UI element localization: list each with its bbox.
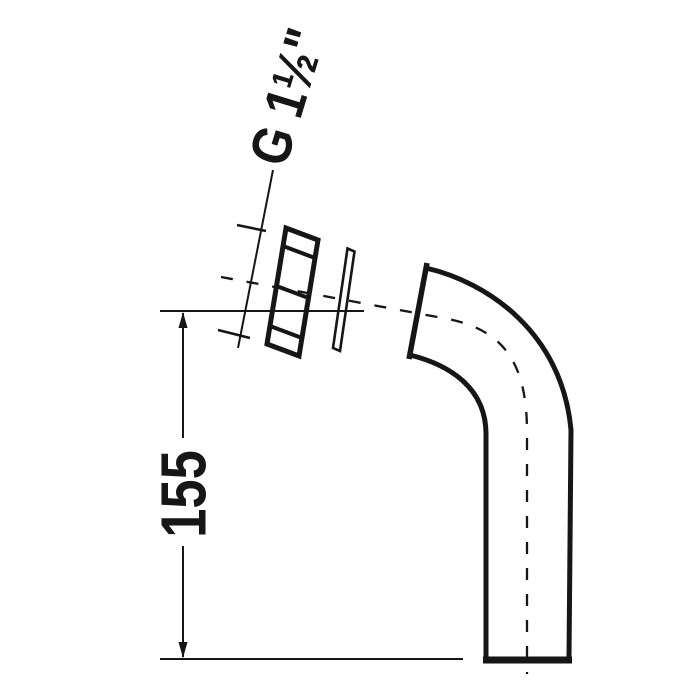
height-dimension-arrow-bottom (179, 642, 188, 658)
thread-dimension: G 1½" (218, 21, 338, 348)
washer-outline (333, 249, 355, 352)
pipe-elbow-outer-wall (426, 268, 571, 658)
pipe-elbow-inner-wall (410, 355, 486, 658)
thread-size-label: G 1½" (238, 21, 338, 172)
technical-drawing-canvas: 155 G 1½" (0, 0, 700, 700)
height-dimension-label: 155 (148, 450, 219, 538)
thread-dimension-tick-lower (218, 330, 250, 338)
height-dimension: 155 (148, 311, 463, 659)
pipe-elbow-technical-drawing: 155 G 1½" (0, 0, 700, 700)
height-dimension-arrow-top (179, 312, 188, 328)
washer (333, 249, 355, 352)
thread-dimension-line (238, 170, 273, 348)
union-nut (267, 228, 318, 356)
pipe-elbow (409, 263, 572, 660)
pipe-flange-face (409, 263, 427, 359)
union-nut-facet-line-top (283, 246, 315, 258)
union-nut-facet-line-bottom (270, 326, 302, 338)
